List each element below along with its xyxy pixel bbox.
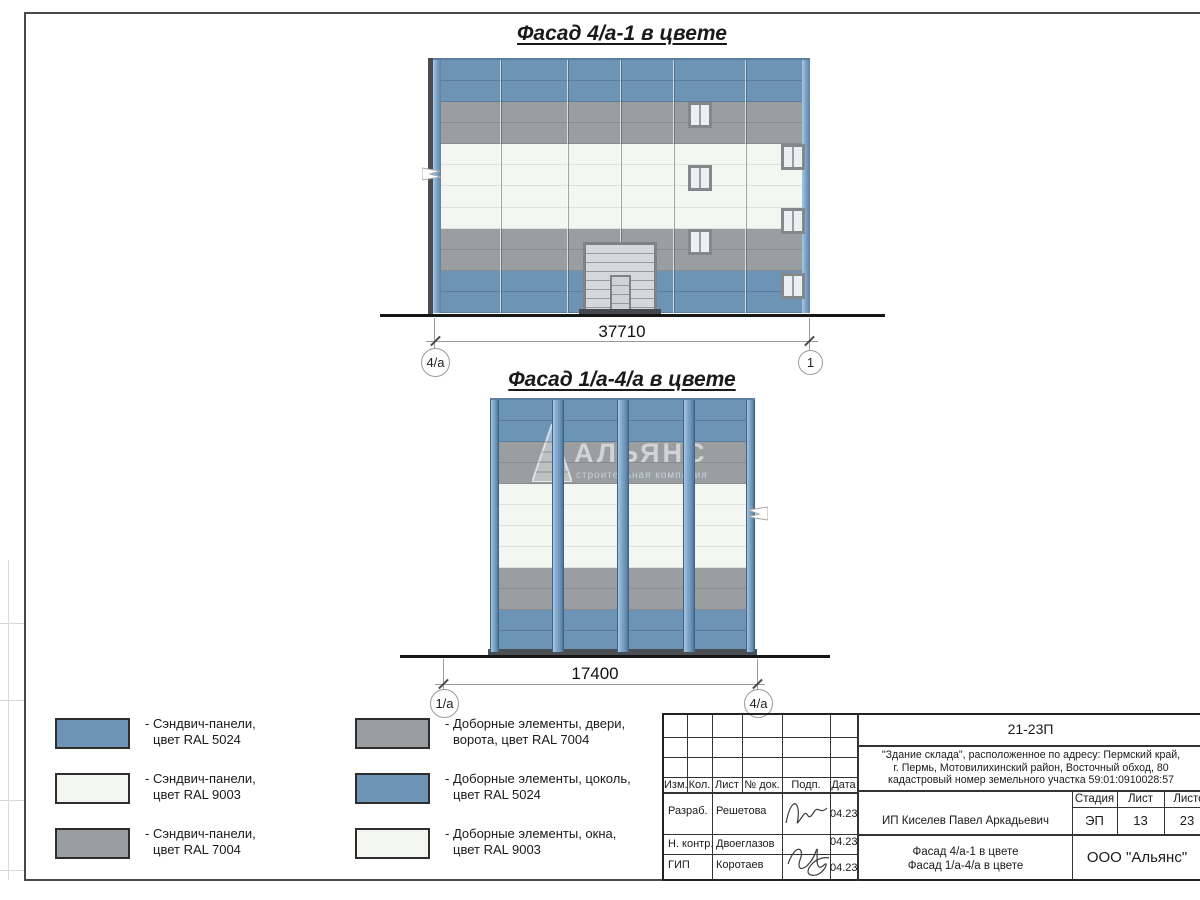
- title-block: Изм. Кол. Лист № док. Подп. Дата Разраб.…: [662, 713, 1200, 881]
- legend-label: - Доборные элементы, цоколь,: [445, 771, 631, 786]
- facade2-dimension: 17400: [495, 664, 695, 684]
- legend-swatch: [355, 773, 430, 804]
- col-kol: Кол.: [687, 779, 712, 792]
- project-address: "Здание склада", расположенное по адресу…: [863, 749, 1199, 787]
- legend-item: - Доборные элементы, двери, ворота, цвет…: [355, 716, 655, 756]
- pilaster: [617, 400, 629, 652]
- margin-line: [0, 800, 24, 801]
- pilaster: [490, 400, 499, 652]
- legend-label: - Сэндвич-панели,: [145, 716, 256, 731]
- break-mark-icon: [746, 505, 768, 522]
- legend-label: - Сэндвич-панели,: [145, 826, 256, 841]
- break-mark-icon: [422, 166, 442, 182]
- col-doc: № док.: [742, 779, 782, 792]
- row-role: Разраб.: [668, 805, 708, 818]
- row-name: Коротаев: [716, 859, 764, 872]
- legend-label: ворота, цвет RAL 7004: [445, 732, 589, 747]
- row-name: Решетова: [716, 805, 766, 818]
- extension-line: [434, 318, 435, 350]
- margin-line: [0, 623, 24, 624]
- row-date: 04.23: [830, 836, 857, 849]
- legend-label: цвет RAL 7004: [145, 842, 241, 857]
- legend-label: - Доборные элементы, двери,: [445, 716, 625, 731]
- margin-line: [0, 700, 24, 701]
- row-date: 04.23: [830, 862, 857, 875]
- ground-line: [400, 655, 830, 658]
- client-name: ИП Киселев Павел Аркадьевич: [859, 815, 1072, 828]
- signature: [782, 836, 832, 880]
- facade2-title: Фасад 1/а-4/а в цвете: [380, 368, 864, 392]
- facade1-title: Фасад 4/а-1 в цвете: [380, 22, 864, 46]
- window: [781, 273, 805, 299]
- legend-label: цвет RAL 9003: [145, 787, 241, 802]
- col-podp: Подп.: [782, 779, 830, 792]
- facade1-drawing: [433, 58, 810, 313]
- sheet-header: Лист: [1117, 793, 1164, 806]
- facade1-dimension: 37710: [522, 322, 722, 342]
- legend-item: - Сэндвич-панели, цвет RAL 7004: [55, 826, 345, 866]
- legend-swatch: [355, 828, 430, 859]
- row-role: Н. контр.: [668, 838, 713, 851]
- legend-item: - Доборные элементы, цоколь, цвет RAL 50…: [355, 771, 655, 811]
- legend-label: цвет RAL 9003: [445, 842, 541, 857]
- panel-joint: [500, 60, 501, 313]
- row-name: Двоеглазов: [716, 838, 774, 851]
- legend-label: - Доборные элементы, окна,: [445, 826, 616, 841]
- organization-name: ООО "Альянс": [1072, 851, 1200, 864]
- legend-swatch: [55, 773, 130, 804]
- legend-label: цвет RAL 5024: [445, 787, 541, 802]
- stage-header: Стадия: [1072, 793, 1117, 806]
- panel-joint: [567, 60, 568, 313]
- frame-top: [24, 12, 1200, 14]
- margin-line: [8, 560, 9, 880]
- gate-door: [583, 242, 657, 315]
- legend-item: - Сэндвич-панели, цвет RAL 9003: [55, 771, 345, 811]
- sheets-value: 23: [1164, 814, 1200, 827]
- legend-swatch: [55, 718, 130, 749]
- drawing-sheet: Фасад 4/а-1 в цвете: [0, 0, 1200, 900]
- col-izm: Изм.: [664, 779, 687, 792]
- legend-swatch: [355, 718, 430, 749]
- window: [688, 165, 712, 191]
- frame-left: [24, 12, 26, 881]
- ground-line: [380, 314, 885, 317]
- pilaster: [552, 400, 564, 652]
- extension-line: [809, 318, 810, 350]
- corner-trim-left: [433, 60, 441, 313]
- window: [688, 102, 712, 128]
- legend-item: - Доборные элементы, окна, цвет RAL 9003: [355, 826, 655, 866]
- window: [688, 229, 712, 255]
- legend-label: - Сэндвич-панели,: [145, 771, 256, 786]
- sheet-title: Фасад 4/а-1 в цвете Фасад 1/а-4/а в цвет…: [859, 845, 1072, 873]
- facade2-drawing: АЛЬЯНС строительная компания: [490, 398, 755, 652]
- wicket-door: [610, 275, 631, 312]
- axis-marker-1a: 1/а: [430, 689, 459, 718]
- window: [781, 208, 805, 234]
- legend-item: - Сэндвич-панели, цвет RAL 5024: [55, 716, 345, 756]
- margin-line: [0, 870, 24, 871]
- window: [781, 144, 805, 170]
- signature: [782, 795, 830, 833]
- pilaster: [683, 400, 695, 652]
- row-date: 04.23: [830, 808, 857, 821]
- col-list: Лист: [712, 779, 742, 792]
- sheets-header: Листов: [1164, 793, 1200, 806]
- legend-label: цвет RAL 5024: [145, 732, 241, 747]
- row-role: ГИП: [668, 859, 690, 872]
- pilaster: [746, 400, 755, 652]
- sheet-value: 13: [1117, 814, 1164, 827]
- panel-joint: [673, 60, 674, 313]
- legend-swatch: [55, 828, 130, 859]
- project-code: 21-23П: [859, 723, 1200, 736]
- panel-joint: [745, 60, 746, 313]
- dimension-line: [435, 684, 765, 685]
- col-data: Дата: [830, 779, 857, 792]
- stage-value: ЭП: [1072, 814, 1117, 827]
